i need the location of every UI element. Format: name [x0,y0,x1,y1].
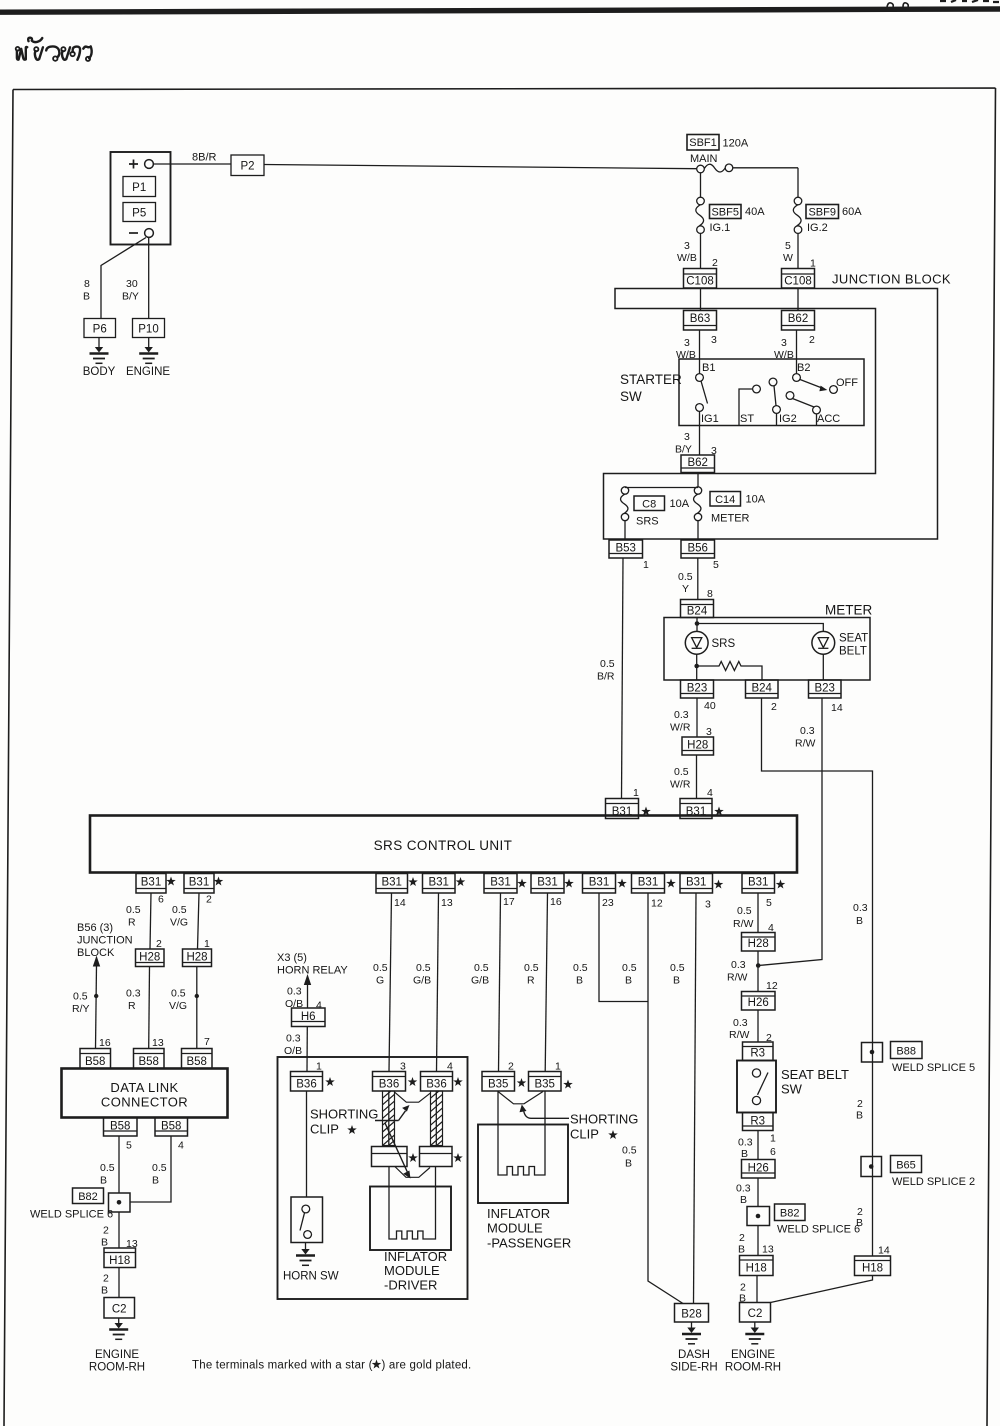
svg-text:120A: 120A [723,138,749,150]
svg-text:B65: B65 [896,1160,916,1172]
svg-text:B2: B2 [797,362,810,374]
svg-text:5: 5 [785,240,791,252]
svg-text:SHORTING: SHORTING [310,1107,378,1122]
svg-text:B: B [152,1175,159,1187]
svg-text:H18: H18 [862,1263,883,1275]
svg-text:0.3: 0.3 [287,986,302,998]
svg-text:H18: H18 [746,1263,767,1275]
svg-text:W/R: W/R [670,722,691,734]
svg-text:BODY: BODY [83,366,116,378]
svg-text:SW: SW [620,389,642,404]
svg-text:IG.2: IG.2 [807,222,828,234]
svg-text:R/W: R/W [733,918,754,930]
svg-text:ROOM-RH: ROOM-RH [89,1362,145,1374]
svg-text:O/B: O/B [284,1045,302,1057]
svg-text:0.5: 0.5 [100,1162,115,1174]
svg-text:R3: R3 [750,1048,765,1060]
svg-text:B: B [625,975,632,987]
svg-text:0.3: 0.3 [853,902,868,914]
svg-text:4: 4 [707,787,713,799]
svg-text:B36: B36 [379,1079,399,1091]
svg-text:B: B [101,1237,108,1249]
svg-text:0.5: 0.5 [524,962,539,974]
svg-text:C14: C14 [715,494,735,506]
svg-text:2: 2 [809,334,815,346]
svg-text:IG1: IG1 [701,413,719,425]
svg-text:B56: B56 [687,543,707,555]
svg-text:B: B [83,291,90,303]
svg-text:0.5: 0.5 [622,962,637,974]
svg-text:B35: B35 [534,1079,554,1091]
svg-text:13: 13 [762,1244,774,1256]
svg-text:5: 5 [766,897,772,909]
svg-text:H18: H18 [109,1255,130,1267]
svg-text:B58: B58 [161,1121,181,1133]
svg-text:ENGINE: ENGINE [95,1349,139,1361]
svg-text:0.5: 0.5 [737,905,752,917]
svg-text:MAIN: MAIN [690,153,718,165]
svg-text:B31: B31 [141,877,161,889]
svg-text:CLIP: CLIP [310,1122,339,1137]
svg-text:4: 4 [316,1000,322,1012]
svg-text:1: 1 [316,1061,322,1073]
svg-text:3: 3 [781,337,787,349]
svg-text:P6: P6 [93,324,107,336]
svg-text:3: 3 [684,337,690,349]
svg-text:P2: P2 [240,161,254,173]
svg-text:SBF5: SBF5 [711,207,739,219]
svg-text:30: 30 [126,278,138,290]
svg-text:P10: P10 [138,324,158,336]
svg-text:1: 1 [770,1133,776,1145]
svg-text:B: B [576,975,583,987]
svg-text:0.5: 0.5 [73,991,88,1003]
svg-text:ENGINE: ENGINE [126,366,170,378]
svg-text:0.5: 0.5 [573,962,588,974]
svg-text:The terminals marked with a st: The terminals marked with a star ( [192,1360,373,1372]
svg-text:2: 2 [103,1225,109,1237]
svg-text:1: 1 [810,258,816,270]
svg-text:60A: 60A [842,206,862,218]
svg-text:2: 2 [206,894,212,906]
svg-text:G/B: G/B [471,975,489,987]
svg-text:3: 3 [706,726,712,738]
svg-text:0.3: 0.3 [736,1183,751,1195]
svg-text:0.5: 0.5 [416,962,431,974]
svg-text:1: 1 [555,1061,561,1073]
svg-text:5: 5 [126,1140,132,1152]
svg-text:3: 3 [711,334,717,346]
svg-text:B23: B23 [814,683,834,695]
svg-text:SEAT BELT: SEAT BELT [781,1067,849,1082]
svg-text:B: B [625,1158,632,1170]
svg-text:0.5: 0.5 [171,988,186,1000]
svg-text:W: W [783,252,793,264]
svg-text:Y: Y [682,583,689,595]
svg-text:8B/R: 8B/R [192,152,217,164]
svg-text:H28: H28 [186,952,207,964]
svg-text:1: 1 [204,938,210,950]
svg-text:H28: H28 [687,740,708,752]
svg-text:6: 6 [770,1146,776,1158]
svg-text:P5: P5 [132,208,146,220]
svg-text:SRS: SRS [636,516,659,528]
svg-text:16: 16 [550,896,562,908]
svg-text:B: B [741,1148,748,1160]
svg-text:14: 14 [831,702,843,714]
svg-text:B: B [100,1175,107,1187]
svg-text:0.5: 0.5 [678,571,693,583]
svg-text:R/Y: R/Y [72,1003,90,1015]
svg-text:STARTER: STARTER [620,372,682,387]
svg-text:8: 8 [84,278,90,290]
svg-text:CONNECTOR: CONNECTOR [101,1095,188,1110]
svg-text:B58: B58 [186,1056,206,1068]
svg-text:0.3: 0.3 [731,959,746,971]
svg-text:12: 12 [766,980,778,992]
svg-text:0.3: 0.3 [126,988,141,1000]
svg-text:B88: B88 [896,1046,916,1058]
svg-text:0.3: 0.3 [286,1033,301,1045]
svg-text:B31: B31 [189,877,209,889]
svg-text:SBF1: SBF1 [689,137,717,149]
svg-text:SIDE-RH: SIDE-RH [670,1362,717,1374]
svg-text:W/R: W/R [670,779,691,791]
svg-text:OFF: OFF [836,377,858,389]
svg-text:0.3: 0.3 [674,709,689,721]
svg-text:B/Y: B/Y [122,291,139,303]
svg-text:B36: B36 [296,1079,316,1091]
svg-text:INFLATOR: INFLATOR [487,1206,550,1221]
svg-text:JUNCTION BLOCK: JUNCTION BLOCK [832,272,951,287]
svg-text:B31: B31 [638,877,658,889]
svg-text:4: 4 [447,1061,453,1073]
svg-text:0.5: 0.5 [373,962,388,974]
svg-text:0.5: 0.5 [674,766,689,778]
svg-text:8: 8 [707,588,713,600]
svg-text:WELD SPLICE 5: WELD SPLICE 5 [892,1062,975,1074]
svg-text:B1: B1 [702,362,715,374]
svg-text:R: R [128,1000,136,1012]
svg-text:B53: B53 [615,543,635,555]
svg-text:2: 2 [508,1061,514,1073]
svg-text:12: 12 [651,898,663,910]
svg-text:R3: R3 [750,1116,765,1128]
svg-text:B: B [738,1244,745,1256]
svg-text:B82: B82 [78,1191,98,1203]
svg-text:SW: SW [781,1082,803,1097]
svg-text:B62: B62 [788,313,808,325]
svg-text:2: 2 [712,257,718,269]
svg-text:C2: C2 [112,1304,127,1316]
svg-text:C8: C8 [642,499,656,511]
svg-text:13: 13 [152,1037,164,1049]
svg-text:B36: B36 [426,1079,446,1091]
svg-text:B31: B31 [381,877,401,889]
svg-text:SRS CONTROL UNIT: SRS CONTROL UNIT [374,838,513,853]
svg-text:BELT: BELT [839,646,867,658]
svg-text:C2: C2 [748,1308,763,1320]
svg-text:MODULE: MODULE [384,1263,440,1278]
svg-text:WELD SPLICE 6: WELD SPLICE 6 [30,1209,113,1221]
svg-text:B35: B35 [488,1079,508,1091]
svg-text:2: 2 [103,1273,109,1285]
svg-text:0.5: 0.5 [474,962,489,974]
svg-text:B23: B23 [687,683,707,695]
svg-text:ST: ST [740,413,754,425]
svg-text:0.5: 0.5 [600,658,615,670]
svg-text:SEAT: SEAT [839,633,868,645]
svg-text:X3 (5): X3 (5) [277,952,307,964]
svg-text:B/R: B/R [597,671,615,683]
svg-text:0.3: 0.3 [733,1017,748,1029]
svg-text:CLIP: CLIP [570,1127,599,1142]
svg-text:B24: B24 [751,683,772,695]
svg-text:B58: B58 [110,1121,130,1133]
svg-text:METER: METER [711,513,750,525]
svg-text:10A: 10A [746,494,766,506]
svg-text:B31: B31 [490,877,510,889]
svg-text:B31: B31 [428,877,448,889]
svg-text:H28: H28 [139,952,160,964]
svg-text:MODULE: MODULE [487,1221,543,1236]
svg-text:B62: B62 [687,457,707,469]
svg-text:2: 2 [739,1232,745,1244]
svg-text:B58: B58 [138,1056,158,1068]
svg-text:4: 4 [178,1140,184,1152]
svg-text:R: R [527,975,535,987]
svg-text:B31: B31 [589,877,609,889]
svg-text:G/B: G/B [413,975,431,987]
svg-text:0.3: 0.3 [800,725,815,737]
svg-text:ACC: ACC [817,413,840,425]
svg-text:-DRIVER: -DRIVER [384,1278,437,1293]
svg-text:B: B [740,1194,747,1206]
svg-text:B58: B58 [85,1056,105,1068]
svg-text:WELD SPLICE 6: WELD SPLICE 6 [777,1224,860,1236]
svg-text:B: B [673,975,680,987]
svg-text:B82: B82 [780,1208,800,1220]
svg-text:3: 3 [400,1061,406,1073]
svg-text:B31: B31 [537,877,557,889]
svg-text:13: 13 [441,897,453,909]
svg-text:IG2: IG2 [779,413,797,425]
svg-text:10A: 10A [670,498,690,510]
svg-text:B28: B28 [681,1309,701,1321]
svg-text:2: 2 [857,1098,863,1110]
svg-text:B56 (3): B56 (3) [77,922,113,934]
svg-text:R/W: R/W [795,738,816,750]
svg-text:SRS: SRS [712,638,736,650]
svg-text:R: R [128,917,136,929]
svg-text:R/W: R/W [727,972,748,984]
svg-text:) are gold plated.: ) are gold plated. [382,1360,472,1372]
svg-text:B31: B31 [748,877,768,889]
svg-text:DATA LINK: DATA LINK [110,1080,178,1095]
svg-text:B24: B24 [687,606,708,618]
svg-text:0.5: 0.5 [622,1145,637,1157]
svg-text:HORN RELAY: HORN RELAY [277,965,348,977]
svg-text:1: 1 [633,787,639,799]
svg-text:40A: 40A [745,206,765,218]
svg-text:WELD SPLICE 2: WELD SPLICE 2 [892,1176,975,1188]
svg-text:B: B [856,1110,863,1122]
svg-text:0.5: 0.5 [152,1162,167,1174]
svg-text:B31: B31 [686,877,706,889]
svg-text:0.5: 0.5 [172,904,187,916]
svg-text:B: B [856,915,863,927]
svg-text:40: 40 [704,700,716,712]
svg-text:14: 14 [394,897,406,909]
svg-text:SHORTING: SHORTING [570,1112,638,1127]
svg-text:H26: H26 [748,1163,769,1175]
svg-text:B: B [101,1285,108,1297]
svg-text:5: 5 [713,559,719,571]
svg-text:B/Y: B/Y [675,444,692,456]
svg-text:P1: P1 [132,182,146,194]
svg-text:3: 3 [705,899,711,911]
svg-text:C108: C108 [784,276,812,288]
svg-text:16: 16 [99,1037,111,1049]
svg-text:G: G [376,975,384,987]
svg-text:DASH: DASH [678,1349,710,1361]
svg-text:B: B [856,1217,863,1229]
svg-text:SBF9: SBF9 [808,207,836,219]
svg-text:H28: H28 [748,938,769,950]
svg-text:2: 2 [156,938,162,950]
svg-text:0.3: 0.3 [738,1137,753,1149]
svg-text:INFLATOR: INFLATOR [384,1249,447,1264]
svg-text:IG.1: IG.1 [710,222,731,234]
svg-text:23: 23 [602,897,614,909]
svg-text:ENGINE: ENGINE [731,1349,775,1361]
svg-text:HORN SW: HORN SW [283,1271,339,1283]
svg-text:2: 2 [771,701,777,713]
svg-text:METER: METER [825,603,873,618]
svg-text:H6: H6 [301,1011,316,1023]
svg-text:V/G: V/G [170,917,188,929]
svg-text:14: 14 [878,1245,890,1257]
svg-text:V/G: V/G [169,1000,187,1012]
svg-text:W/B: W/B [677,252,697,264]
svg-text:6: 6 [158,894,164,906]
svg-text:ROOM-RH: ROOM-RH [725,1362,781,1374]
svg-text:0.5: 0.5 [126,904,141,916]
svg-text:0.5: 0.5 [670,962,685,974]
svg-text:7: 7 [204,1036,210,1048]
svg-text:3: 3 [684,240,690,252]
svg-text:B63: B63 [690,313,710,325]
svg-text:3: 3 [684,431,690,443]
svg-text:JUNCTION: JUNCTION [77,935,133,947]
svg-text:H26: H26 [748,997,769,1009]
svg-text:R/W: R/W [729,1029,750,1041]
svg-text:-PASSENGER: -PASSENGER [487,1236,571,1251]
svg-text:1: 1 [643,559,649,571]
svg-text:17: 17 [503,896,515,908]
svg-text:C108: C108 [686,276,714,288]
